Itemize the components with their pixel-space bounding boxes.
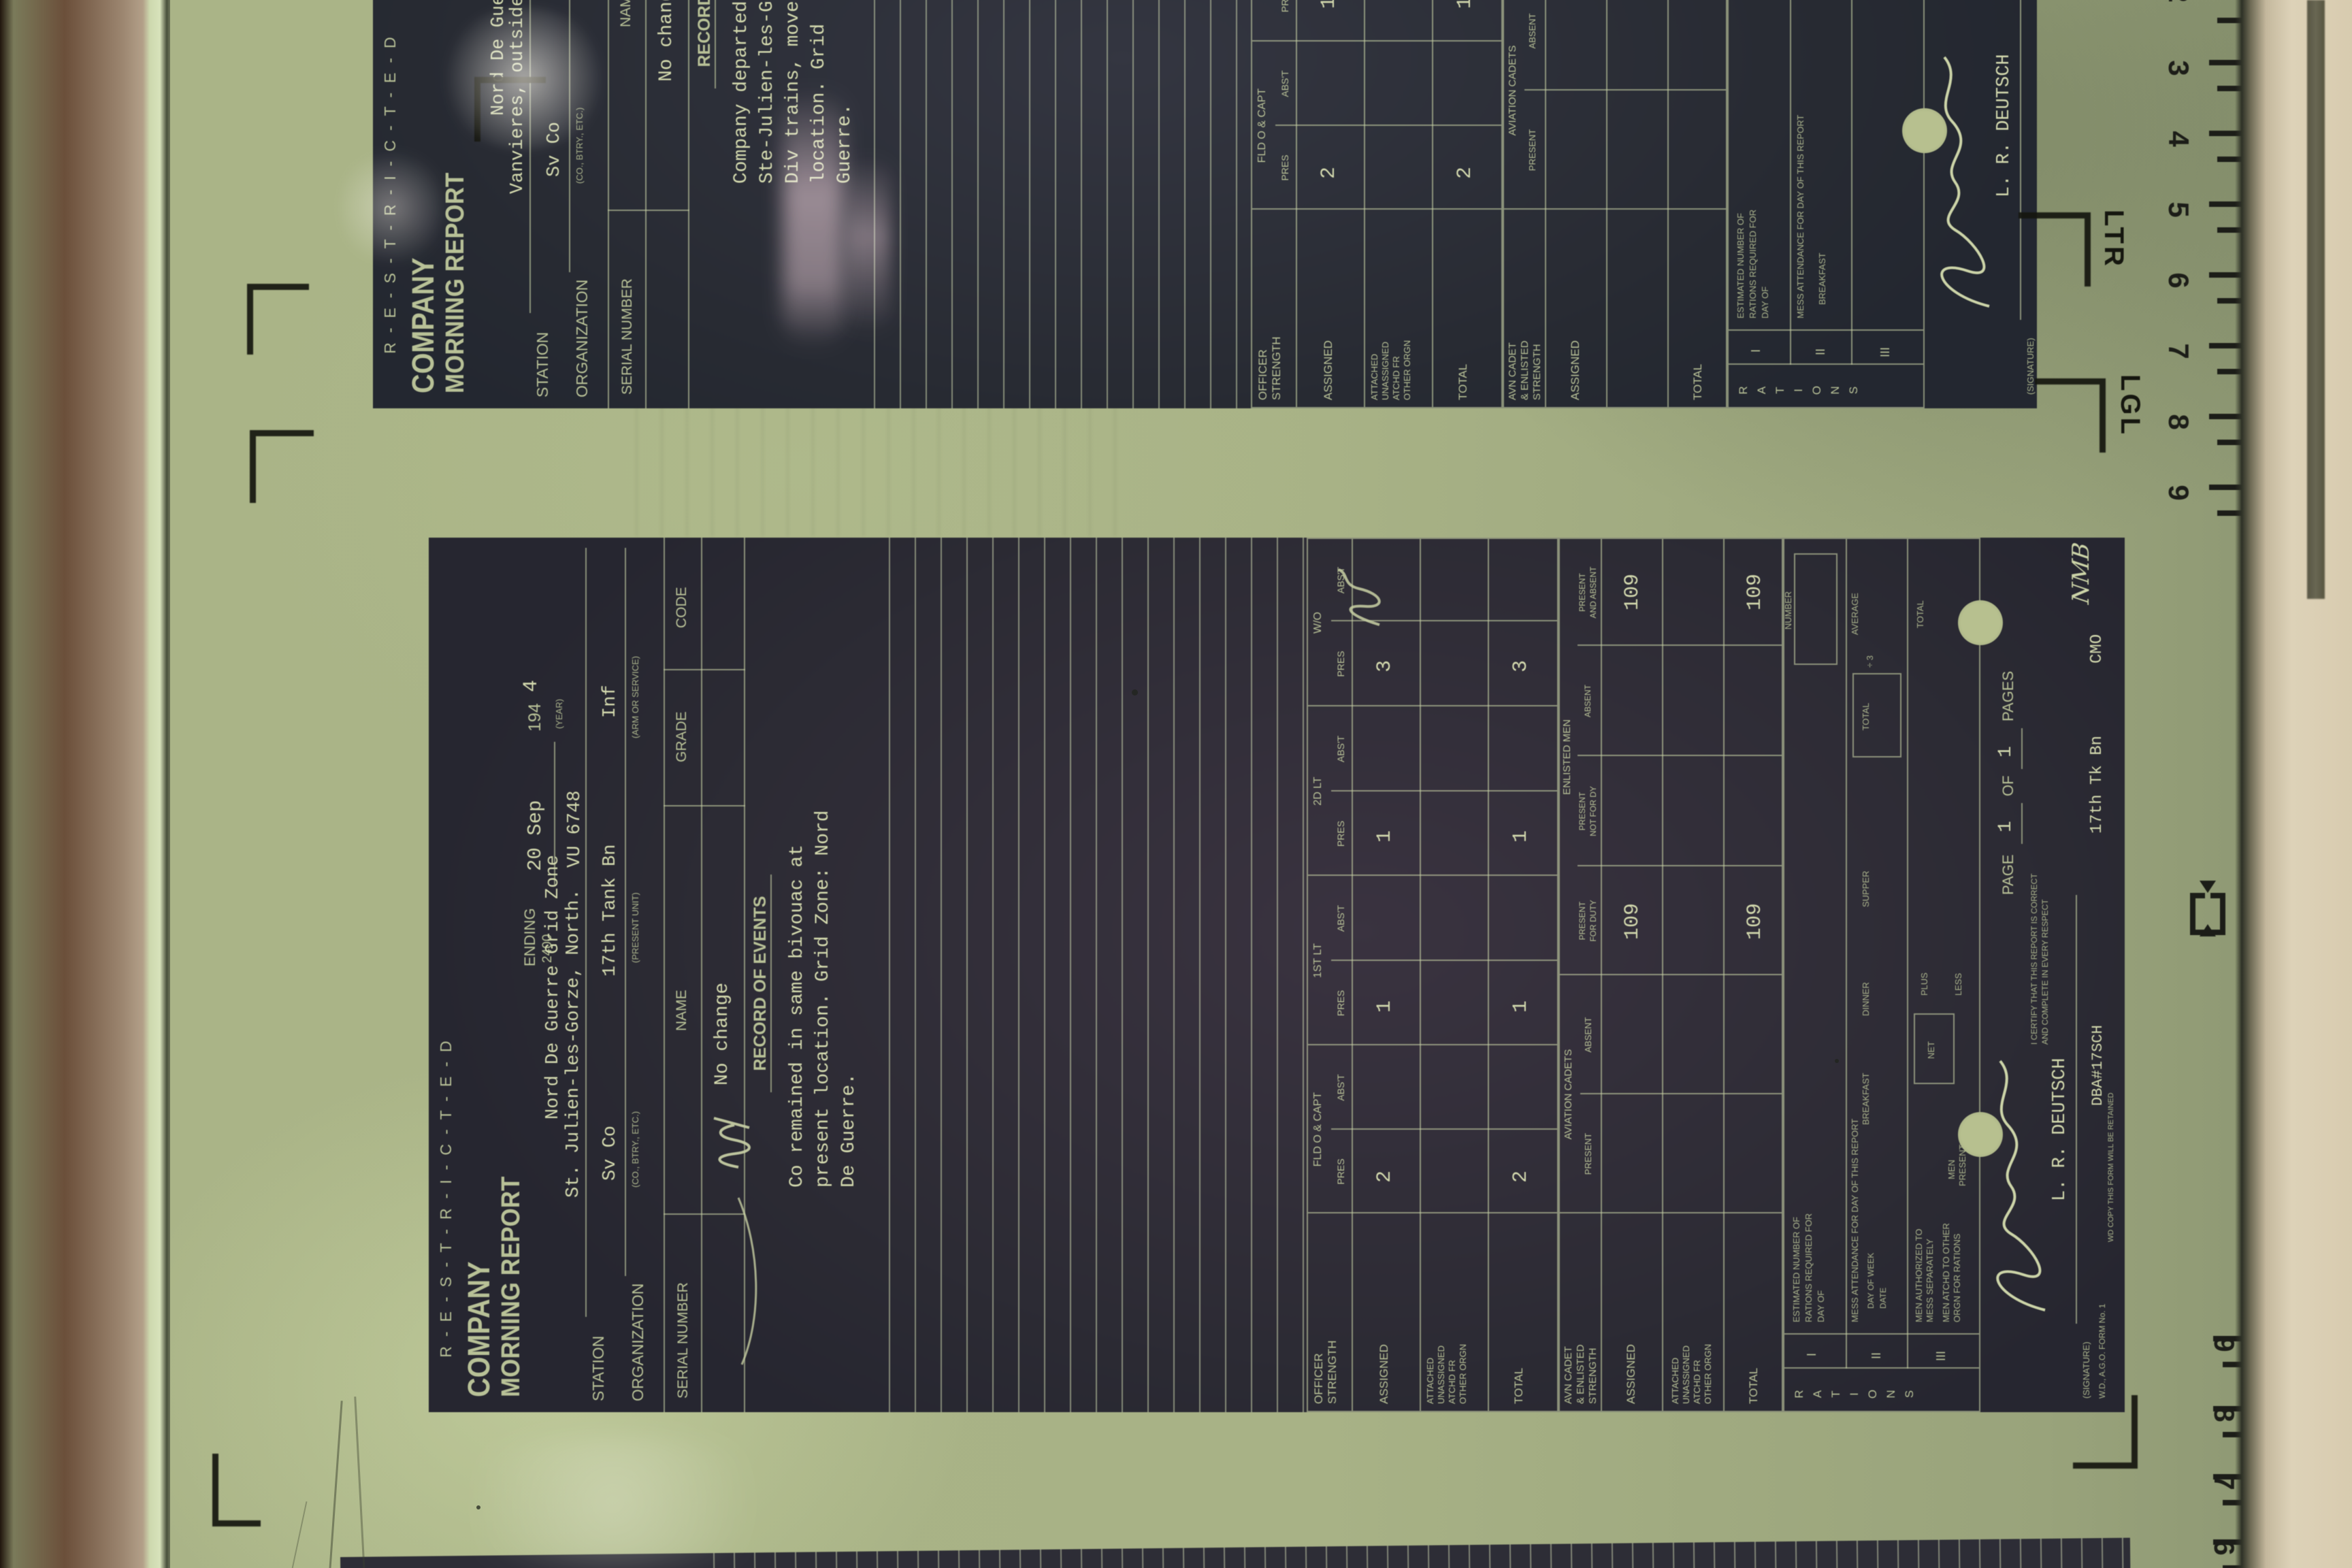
- year-typed: 4: [520, 680, 543, 692]
- row-attached: UNASSIGNED: [1380, 342, 1390, 400]
- absent-sub: ABSENT: [1583, 646, 1592, 756]
- ruled-lines: [849, 0, 1251, 408]
- row-attached: ATTACHED: [1670, 1358, 1680, 1404]
- grid-code: VU 6748: [565, 791, 585, 868]
- film-speck: [1835, 1059, 1839, 1063]
- row-total: TOTAL: [1512, 1368, 1526, 1404]
- frame-corner-bracket: [212, 1454, 261, 1526]
- ruler-number: 6: [2163, 265, 2193, 295]
- station-value: St. Julien-les-Gorze, North.: [563, 889, 584, 1198]
- row-total: TOTAL: [1691, 364, 1705, 400]
- row-attached: ATCHD FR: [1391, 356, 1401, 400]
- dinner-label: DINNER: [1861, 982, 1871, 1016]
- paa-sub: PRESENT: [1578, 539, 1587, 646]
- frame-corner-bracket: [250, 430, 314, 503]
- org-co: Sv Co: [544, 122, 565, 177]
- roman-i: I: [1805, 1353, 1819, 1356]
- film-alignment-mark-icon: [2190, 881, 2225, 936]
- form-number-note: W.D., A.G.O. FORM No. 1: [2097, 1304, 2107, 1399]
- value-assigned-fld: 2: [1373, 1171, 1396, 1183]
- certify-note: AND COMPLETE IN EVERY RESPECT: [2040, 899, 2050, 1045]
- officer-group-label: OFFICER: [1312, 1353, 1326, 1404]
- row-attached: ATCHD FR: [1447, 1360, 1457, 1404]
- rations-row2: MESS ATTENDANCE FOR DAY OF THIS REPORT: [1850, 1119, 1860, 1322]
- value-assigned-1lt: 1: [1373, 1000, 1396, 1013]
- aviation-cadets-col: AVIATION CADETS: [1507, 0, 1518, 210]
- pres-sub: PRES: [1335, 1130, 1346, 1213]
- reader-bezel-right: [2242, 0, 2352, 1568]
- station-label: STATION: [534, 332, 552, 397]
- breakfast-label: BREAKFAST: [1817, 252, 1827, 305]
- plus-label: PLUS: [1919, 973, 1929, 996]
- page-label: PAGE: [1999, 854, 2017, 895]
- ruler-number: 7: [2163, 336, 2193, 366]
- serial-number-label: SERIAL NUMBER: [619, 278, 636, 395]
- reader-frame-rod: [2307, 0, 2325, 599]
- organization-label: ORGANIZATION: [629, 1284, 647, 1401]
- rations-side-label: RATIONS: [1793, 1388, 1972, 1401]
- number-box-label: NUMBER: [1783, 556, 1793, 665]
- officer-group-label: OFFICER: [1256, 349, 1270, 400]
- ruler-number: 8: [2163, 407, 2193, 437]
- org-caption-co: (CO., BTRY., ETC.): [574, 108, 585, 184]
- ruler-number: 5: [2163, 195, 2193, 225]
- officer-strength-table: OFFICER STRENGTH FLD O & CAPT 1ST LT 2D …: [1251, 0, 1503, 408]
- present-sub: PRESENT: [1583, 1094, 1593, 1213]
- event-line: location. Grid: [808, 24, 830, 184]
- avn-group-label: & ENLISTED: [1519, 340, 1531, 400]
- less-label: LESS: [1953, 973, 1963, 996]
- rations-row1: ESTIMATED NUMBER OF: [1791, 1217, 1801, 1322]
- event-line: present location. Grid Zone: Nord: [813, 811, 834, 1188]
- handwritten-initials: NMB: [2068, 541, 2095, 606]
- row-attached: UNASSIGNED: [1436, 1345, 1446, 1404]
- name-label: NAME: [618, 0, 634, 27]
- event-line: Div trains, moved: [783, 0, 804, 184]
- punch-hole: [1958, 1112, 2003, 1157]
- rations-row3a: MEN AUTHORIZED TO: [1914, 1229, 1924, 1322]
- year-caption: (YEAR): [554, 699, 564, 729]
- rations-row1: ESTIMATED NUMBER OF: [1735, 213, 1746, 318]
- abst-sub: ABS'T: [1335, 1045, 1346, 1130]
- abst-sub: ABS'T: [1335, 876, 1346, 961]
- morning-report-top-frame: R-E-S-T-R-I-C-T-E-D COMPANY MORNING REPO…: [373, 0, 2037, 408]
- pnd-sub: NOT FOR DY: [1588, 756, 1598, 866]
- value-assigned-present-for-duty: 109: [1621, 903, 1644, 940]
- year-printed: 194: [525, 703, 545, 732]
- code-label: CODE: [674, 587, 690, 628]
- col-fld-o-capt: FLD O & CAPT: [1312, 1045, 1324, 1213]
- abst-sub: ABS'T: [1335, 706, 1346, 791]
- station-label: STATION: [589, 1336, 608, 1401]
- date-label: DATE: [1878, 1288, 1888, 1309]
- row-attached: OTHER ORGN: [1458, 1344, 1468, 1404]
- roman-i: I: [1749, 349, 1763, 353]
- ruled-lines: [864, 538, 1307, 1412]
- microfilm-reader-photo: R-E-S-T-R-I-C-T-E-D COMPANY MORNING REPO…: [0, 0, 2352, 1568]
- form-title-line2: MORNING REPORT: [441, 173, 470, 393]
- value-total-present-and-absent: 109: [1744, 574, 1767, 610]
- col-2d-lt: 2D LT: [1312, 706, 1324, 876]
- rations-row2: MESS ATTENDANCE FOR DAY OF THIS REPORT: [1795, 115, 1806, 318]
- stamp-unit: 17th Tk Bn: [2088, 736, 2106, 834]
- officer-strength-table: OFFICER STRENGTH FLD O & CAPT 1ST LT 2D …: [1307, 538, 1558, 1412]
- ending-label: ENDING: [521, 908, 539, 966]
- roster-entry: No change: [656, 0, 677, 82]
- value-total-wo: 3: [1509, 660, 1533, 672]
- handwritten-annotation: [691, 1085, 772, 1371]
- film-speck: [476, 1505, 480, 1509]
- row-total: TOTAL: [1456, 364, 1470, 400]
- col-fld-o-capt: FLD O & CAPT: [1256, 42, 1269, 210]
- punch-hole: [1902, 108, 1947, 153]
- rations-row1: DAY OF: [1760, 287, 1770, 318]
- signature-caption: (SIGNATURE): [2025, 338, 2036, 395]
- certify-note: I CERTIFY THAT THIS REPORT IS CORRECT: [2029, 873, 2039, 1045]
- page-number: 1: [1995, 821, 2016, 832]
- name-label: NAME: [674, 990, 690, 1031]
- row-attached: ATTACHED: [1369, 354, 1379, 400]
- value-assigned-1lt: 1: [1318, 0, 1341, 9]
- frame-corner-bracket: [247, 284, 309, 355]
- rations-row1: RATIONS REQUIRED FOR: [1803, 1213, 1814, 1322]
- roman-ii: II: [1869, 1352, 1884, 1359]
- pnd-sub: PRESENT: [1578, 756, 1587, 866]
- supper-label: SUPPER: [1861, 871, 1871, 907]
- ruler-number: 2: [2163, 0, 2193, 10]
- enlisted-strength-table: AVN CADET & ENLISTED STRENGTH AVIATION C…: [1503, 0, 1727, 408]
- pages-label: PAGES: [1999, 671, 2017, 721]
- absent-sub: ABSENT: [1583, 975, 1593, 1094]
- value-assigned-present-and-absent: 109: [1621, 574, 1644, 610]
- value-total-1lt: 1: [1509, 1000, 1533, 1013]
- roman-iii: III: [1878, 347, 1893, 357]
- ruler-letter-size-label: LTR: [2098, 210, 2129, 269]
- enlisted-men-col: ENLISTED MEN: [1561, 539, 1573, 975]
- avn-group-label: STRENGTH: [1587, 1348, 1599, 1405]
- rations-row1: RATIONS REQUIRED FOR: [1748, 210, 1758, 318]
- ruler-legal-size-label: LGL: [2114, 374, 2145, 437]
- org-unit: 17th Tank Bn: [600, 845, 621, 977]
- avn-group-label: & ENLISTED: [1575, 1344, 1586, 1404]
- pres-sub: PRES: [1335, 961, 1346, 1045]
- rations-row3b: MEN ATCHD TO OTHER: [1941, 1223, 1951, 1322]
- morning-report-top-form: R-E-S-T-R-I-C-T-E-D COMPANY MORNING REPO…: [373, 0, 2037, 408]
- signature-caption: (SIGNATURE): [2081, 1341, 2091, 1399]
- form-title-line2: MORNING REPORT: [497, 1177, 526, 1397]
- org-caption-unit: (PRESENT UNIT): [630, 892, 640, 963]
- ruler-number: 3: [2163, 53, 2193, 83]
- row-attached: OTHER ORGN: [1402, 340, 1412, 400]
- org-arm: Inf: [600, 685, 621, 718]
- org-caption-arm: (ARM OR SERVICE): [630, 656, 640, 738]
- row-total: TOTAL: [1747, 1368, 1761, 1404]
- value-total-fld: 2: [1509, 1171, 1533, 1183]
- form-title-line1: COMPANY: [461, 1262, 497, 1397]
- restricted-banner: R-E-S-T-R-I-C-T-E-D: [381, 0, 399, 381]
- rations-row3a: MESS SEPARATELY: [1925, 1239, 1935, 1322]
- roster-entry: No change: [712, 983, 733, 1085]
- typed-signature-name: L. R. DEUTSCH: [2050, 1058, 2070, 1201]
- record-of-events-title: RECORD OF EVENTS: [751, 875, 772, 1092]
- pres-sub: PRES: [1279, 126, 1290, 210]
- event-line: Ste-Julien-les-Gorze,: [757, 0, 778, 184]
- roman-iii: III: [1934, 1351, 1948, 1361]
- men-present-label: MEN: [1946, 1160, 1957, 1179]
- rations-row1: DAY OF: [1816, 1290, 1826, 1322]
- divide-by-three: ÷ 3: [1865, 655, 1875, 668]
- row-attached: ATCHD FR: [1692, 1360, 1702, 1404]
- absent-sub: ABSENT: [1527, 0, 1537, 91]
- value-total-fld: 2: [1454, 167, 1477, 179]
- pres-sub: PRES: [1279, 0, 1290, 42]
- reader-bezel-left: [0, 0, 170, 1568]
- record-of-events-title: RECORD OF EVENTS: [695, 0, 716, 88]
- frame-corner-bracket: [474, 77, 546, 142]
- officer-group-label: STRENGTH: [1326, 1341, 1339, 1405]
- of-label: OF: [1999, 775, 2017, 796]
- event-line: Co remained in same bivouac at: [787, 845, 808, 1188]
- rations-side-label: RATIONS: [1737, 384, 1916, 397]
- punch-hole: [1958, 600, 2003, 645]
- abst-sub: ABS'T: [1279, 42, 1290, 126]
- avn-group-label: AVN CADET: [1507, 342, 1518, 400]
- value-assigned-2lt: 1: [1373, 830, 1396, 843]
- form-title-line1: COMPANY: [406, 258, 441, 393]
- total-box-label: TOTAL: [1861, 676, 1871, 757]
- value-assigned-fld: 2: [1318, 167, 1341, 179]
- pfd-sub: PRESENT: [1578, 866, 1587, 975]
- org-caption-co: (CO., BTRY., ETC.): [630, 1111, 640, 1188]
- present-sub: PRESENT: [1527, 91, 1537, 210]
- row-assigned: ASSIGNED: [1322, 340, 1335, 400]
- row-assigned: ASSIGNED: [1377, 1344, 1391, 1404]
- rations-row3b: ORGN FOR RATIONS: [1952, 1234, 1962, 1322]
- frame-corner-bracket: [2019, 212, 2091, 287]
- net-box-label: NET: [1926, 1016, 1936, 1084]
- col-wo: W/O: [1312, 539, 1324, 706]
- row-attached: UNASSIGNED: [1681, 1345, 1691, 1404]
- event-line: De Guerre.: [838, 1073, 860, 1188]
- enlisted-strength-table: AVN CADET & ENLISTED STRENGTH AVIATION C…: [1558, 538, 1783, 1412]
- avn-group-label: STRENGTH: [1531, 344, 1543, 401]
- typed-signature-name: L. R. DEUTSCH: [1994, 54, 2014, 197]
- pres-sub: PRES: [1335, 791, 1346, 876]
- value-assigned-wo: 3: [1373, 660, 1396, 672]
- organization-label: ORGANIZATION: [573, 280, 591, 397]
- stamp-cmo: CMO: [2088, 634, 2106, 664]
- value-total-present-for-duty: 109: [1744, 903, 1767, 940]
- value-total-1lt: 1: [1454, 0, 1477, 9]
- morning-report-center-form: R-E-S-T-R-I-C-T-E-D COMPANY MORNING REPO…: [429, 538, 2125, 1412]
- copy-note: WD COPY THIS FORM WILL BE RETAINED: [2107, 1092, 2115, 1242]
- row-attached: ATTACHED: [1425, 1358, 1435, 1404]
- pfd-sub: FOR DUTY: [1588, 866, 1598, 975]
- pages-total: 1: [1995, 746, 2016, 757]
- film-speck: [1132, 689, 1138, 696]
- handwritten-scribble: [1325, 560, 1400, 635]
- rations-section: RATIONS I II III ESTIMATED NUMBER OF RAT…: [1783, 538, 1980, 1412]
- aviation-cadets-col: AVIATION CADETS: [1563, 975, 1574, 1213]
- frame-corner-bracket: [2035, 378, 2106, 453]
- morning-report-center-frame: R-E-S-T-R-I-C-T-E-D COMPANY MORNING REPO…: [429, 538, 2125, 1412]
- ruler-number: 9: [2163, 478, 2193, 508]
- col-1st-lt: 1ST LT: [1256, 0, 1269, 42]
- restricted-banner: R-E-S-T-R-I-C-T-E-D: [437, 1004, 455, 1385]
- day-of-week-label: DAY OF WEEK: [1866, 1253, 1876, 1309]
- org-co: Sv Co: [600, 1126, 621, 1181]
- grade-label: GRADE: [674, 711, 690, 762]
- stamp-schedule: DBA#17SCH: [2089, 1025, 2106, 1106]
- film-ghost-lines: [612, 407, 1130, 536]
- frame-corner-bracket: [2073, 1395, 2138, 1469]
- breakfast-label: BREAKFAST: [1861, 1073, 1871, 1125]
- rations-section: RATIONS I II III ESTIMATED NUMBER OF RAT…: [1727, 0, 1925, 408]
- ruler-number: 4: [2163, 124, 2193, 154]
- officer-group-label: STRENGTH: [1270, 337, 1284, 401]
- row-attached: OTHER ORGN: [1703, 1344, 1713, 1404]
- serial-number-label: SERIAL NUMBER: [675, 1282, 691, 1399]
- total-label: TOTAL: [1915, 600, 1925, 628]
- value-total-2lt: 1: [1509, 830, 1533, 843]
- paa-sub: AND ABSENT: [1588, 539, 1598, 646]
- col-1st-lt: 1ST LT: [1312, 876, 1324, 1045]
- roman-ii: II: [1814, 348, 1828, 355]
- avn-group-label: AVN CADET: [1563, 1346, 1574, 1404]
- grid-note: Nord De Guerre Grid Zone: [543, 855, 563, 1120]
- row-assigned: ASSIGNED: [1569, 340, 1582, 400]
- average-label: AVERAGE: [1850, 593, 1860, 635]
- row-assigned: ASSIGNED: [1624, 1344, 1638, 1404]
- event-line: Company departed by: [731, 0, 752, 184]
